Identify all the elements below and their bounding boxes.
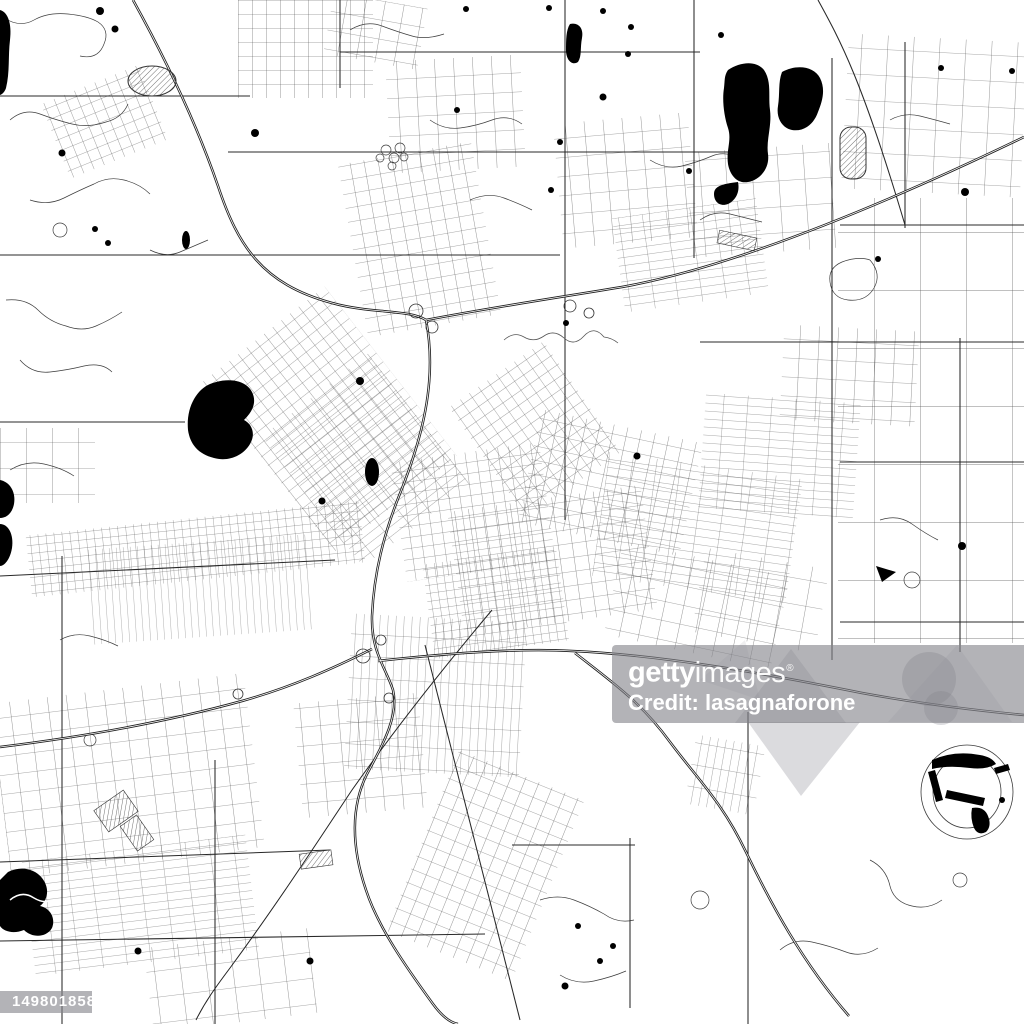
getty-logo-light: images [695,657,786,689]
getty-logo: gettyimages® [612,645,1024,688]
getty-logo-bold: getty [628,657,695,689]
map-svg [0,0,1024,1024]
ring-lake [921,745,1013,839]
grid-neighborhoods [0,0,1024,1024]
getty-watermark-band: gettyimages® Credit: lasagnaforone [612,645,1024,723]
map-root: gettyimages® Credit: lasagnaforone 14980… [0,0,1024,1024]
image-id-badge: 1498018586 [0,991,92,1013]
image-id-text: 1498018586 [12,993,105,1010]
river [504,331,618,343]
credit-line: Credit: lasagnaforone [612,688,1024,716]
registered-mark: ® [786,663,793,674]
